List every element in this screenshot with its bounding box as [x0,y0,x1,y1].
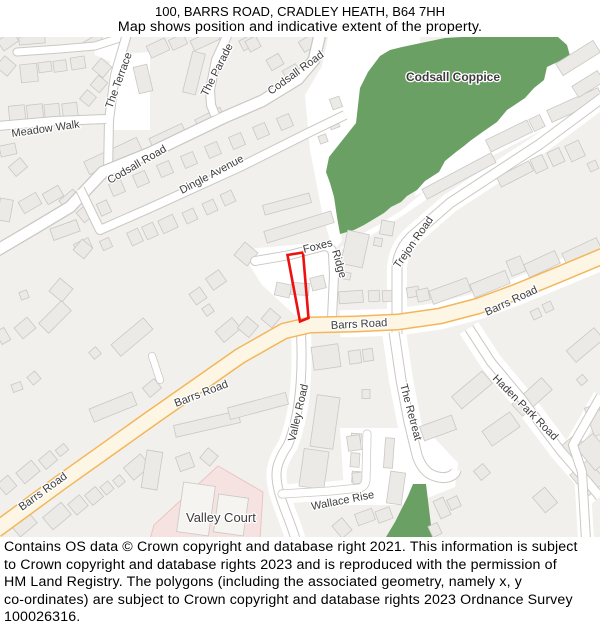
svg-text:Valley Court: Valley Court [186,510,256,525]
svg-text:Codsall Coppice: Codsall Coppice [406,70,500,84]
